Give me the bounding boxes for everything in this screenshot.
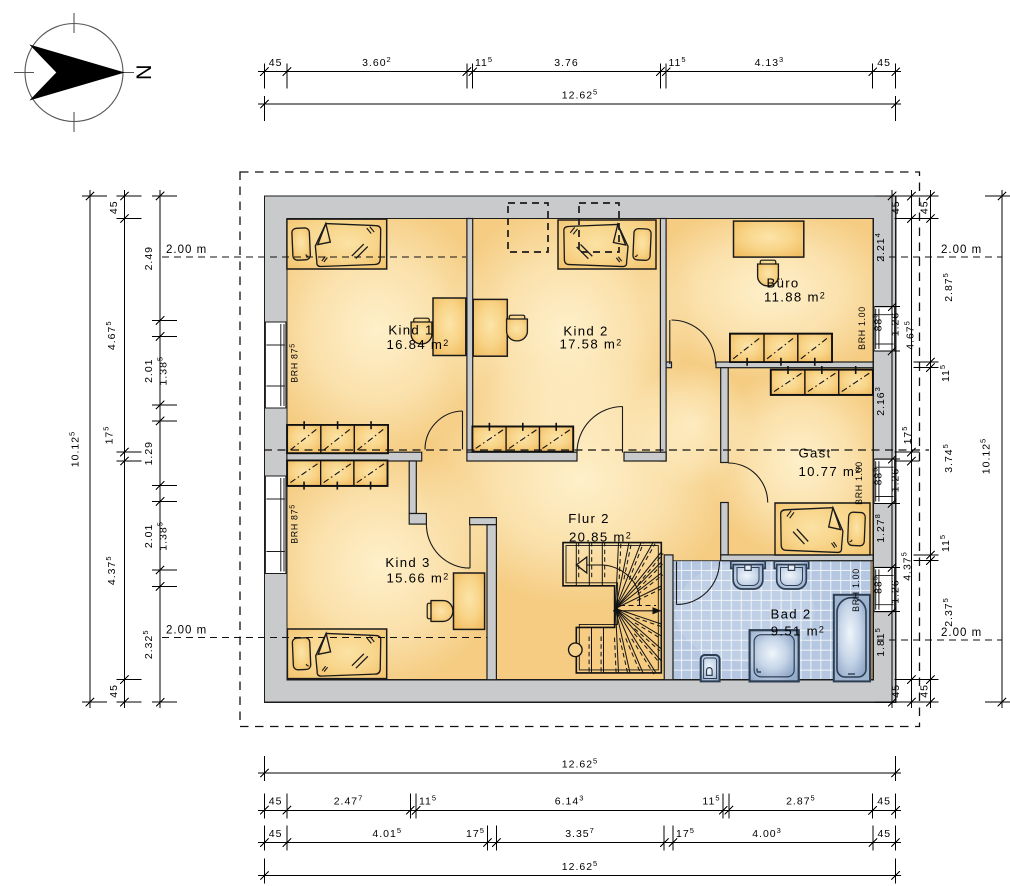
svg-text:BRH 1.00: BRH 1.00 <box>851 568 861 612</box>
svg-text:Gast: Gast <box>798 446 831 461</box>
svg-text:Bad 2: Bad 2 <box>771 607 812 622</box>
svg-text:Flur 2: Flur 2 <box>568 511 610 526</box>
svg-text:20.85 m2: 20.85 m2 <box>569 530 632 545</box>
svg-text:Kind 3: Kind 3 <box>385 555 430 570</box>
svg-text:2.01: 2.01 <box>143 358 155 382</box>
svg-text:45: 45 <box>919 200 931 214</box>
svg-text:N: N <box>132 65 156 81</box>
svg-text:45: 45 <box>890 684 902 698</box>
svg-text:16.84 m2: 16.84 m2 <box>386 337 449 352</box>
svg-text:3.76: 3.76 <box>554 57 578 69</box>
svg-text:45: 45 <box>919 684 931 698</box>
svg-text:2.00 m: 2.00 m <box>941 244 982 256</box>
svg-text:1.26: 1.26 <box>890 312 902 336</box>
svg-text:2.00 m: 2.00 m <box>166 625 207 637</box>
svg-text:1.26: 1.26 <box>890 579 902 603</box>
svg-text:BRH 1.00: BRH 1.00 <box>854 461 864 505</box>
svg-text:10.125: 10.125 <box>979 438 993 474</box>
svg-text:45: 45 <box>877 796 891 808</box>
svg-text:12.625: 12.625 <box>562 756 598 770</box>
svg-text:BRH 875: BRH 875 <box>290 504 300 544</box>
svg-text:2.00 m: 2.00 m <box>941 627 982 639</box>
svg-text:2.01: 2.01 <box>143 524 155 548</box>
svg-text:2.00 m: 2.00 m <box>166 244 207 256</box>
svg-text:9.51 m2: 9.51 m2 <box>771 624 825 639</box>
svg-text:2.49: 2.49 <box>143 246 155 270</box>
svg-text:11.88 m2: 11.88 m2 <box>764 290 826 305</box>
svg-text:45: 45 <box>269 796 283 808</box>
svg-text:45: 45 <box>269 57 283 69</box>
svg-text:BRH 1.00: BRH 1.00 <box>857 306 867 350</box>
svg-text:45: 45 <box>877 828 891 840</box>
svg-text:12.625: 12.625 <box>562 87 598 101</box>
svg-text:Kind 1: Kind 1 <box>388 323 433 338</box>
svg-text:45: 45 <box>108 684 120 698</box>
svg-text:45: 45 <box>890 200 902 214</box>
svg-text:1.29: 1.29 <box>143 441 155 465</box>
svg-text:17.58 m2: 17.58 m2 <box>559 337 622 352</box>
svg-text:45: 45 <box>269 828 283 840</box>
svg-text:1.26: 1.26 <box>890 468 902 492</box>
svg-text:12.625: 12.625 <box>562 859 598 873</box>
svg-text:BRH 875: BRH 875 <box>290 343 300 383</box>
svg-text:15.66 m2: 15.66 m2 <box>386 571 449 586</box>
svg-text:45: 45 <box>108 200 120 214</box>
svg-text:10.125: 10.125 <box>68 431 82 467</box>
svg-text:45: 45 <box>877 57 891 69</box>
svg-text:Büro: Büro <box>766 276 799 291</box>
svg-text:10.77 m2: 10.77 m2 <box>798 464 861 479</box>
